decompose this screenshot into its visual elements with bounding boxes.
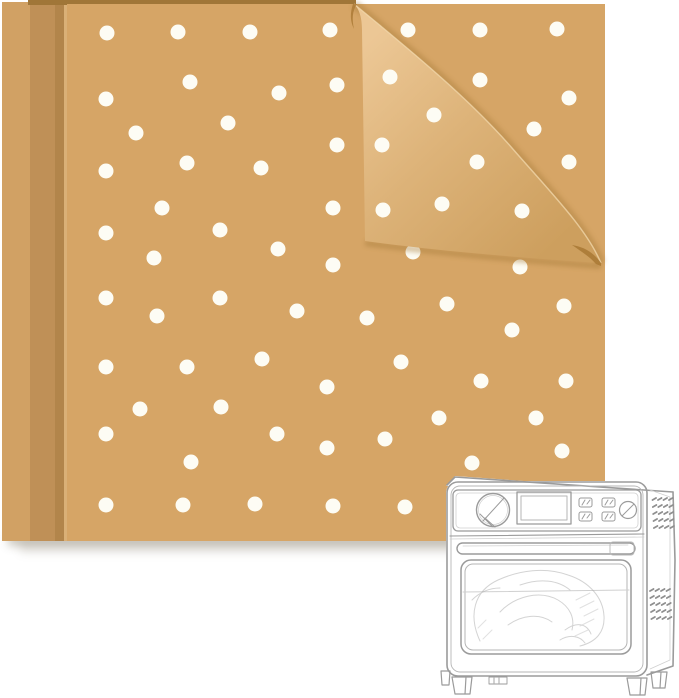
perforation-dot	[529, 411, 544, 426]
perforation-dot	[320, 380, 335, 395]
product-image	[0, 0, 679, 698]
oven-sketch	[441, 476, 675, 695]
perforation-dot	[398, 500, 413, 515]
perforation-dot	[465, 456, 480, 471]
foot-back-left	[441, 671, 450, 685]
perforation-dot	[562, 155, 577, 170]
perforation-dot	[180, 360, 195, 375]
perforation-dot	[243, 25, 258, 40]
perforation-dot	[100, 26, 115, 41]
perforation-dot	[99, 92, 114, 107]
perforation-dot	[320, 441, 335, 456]
perforation-dot	[213, 291, 228, 306]
perforation-dot	[99, 226, 114, 241]
perforation-dot	[474, 374, 489, 389]
perforation-dot	[213, 223, 228, 238]
scene-svg	[0, 0, 679, 698]
perforation-dot	[326, 201, 341, 216]
paper-stack	[2, 0, 605, 553]
perforation-dot	[155, 201, 170, 216]
perforation-dot	[440, 297, 455, 312]
perforation-dot	[248, 497, 263, 512]
perforation-dot	[323, 23, 338, 38]
perforation-dot	[99, 360, 114, 375]
door-latch	[489, 677, 507, 684]
perforation-dot	[470, 155, 485, 170]
perforation-dot	[290, 304, 305, 319]
perforation-dot	[183, 75, 198, 90]
perforation-dot	[473, 23, 488, 38]
perforation-dot	[133, 402, 148, 417]
perforation-dot	[147, 251, 162, 266]
perforation-dot	[184, 455, 199, 470]
perforation-dot	[557, 299, 572, 314]
perforation-dot	[254, 161, 269, 176]
perforation-dot	[270, 427, 285, 442]
perforation-dot	[129, 126, 144, 141]
perforation-dot	[99, 164, 114, 179]
sheet-edge-band-1	[2, 2, 30, 541]
perforation-dot	[255, 352, 270, 367]
perforation-dot	[432, 411, 447, 426]
perforation-dot	[221, 116, 236, 131]
perforation-dot	[99, 427, 114, 442]
perforation-dot	[550, 22, 565, 37]
perforation-dot	[214, 400, 229, 415]
perforation-dot	[180, 156, 195, 171]
perforation-dot	[378, 432, 393, 447]
perforation-dot	[555, 444, 570, 459]
perforation-dot	[271, 242, 286, 257]
perforation-dot	[562, 91, 577, 106]
perforation-dot	[383, 70, 398, 85]
perforation-dot	[435, 197, 450, 212]
perforation-dot	[326, 258, 341, 273]
perforation-dot	[427, 108, 442, 123]
perforation-dot	[473, 73, 488, 88]
perforation-dot	[375, 138, 390, 153]
perforation-dot	[99, 291, 114, 306]
perforation-dot	[176, 498, 191, 513]
perforation-dot	[527, 122, 542, 137]
perforation-dot	[360, 311, 375, 326]
perforation-dot	[401, 23, 416, 38]
perforation-dot	[559, 374, 574, 389]
perforation-dot	[515, 204, 530, 219]
foot-front-left	[452, 677, 472, 694]
foot-back-right	[651, 672, 667, 688]
perforation-dot	[330, 78, 345, 93]
perforation-dot	[272, 86, 287, 101]
perforation-dot	[505, 323, 520, 338]
foot-front-right	[627, 678, 647, 695]
perforation-dot	[330, 138, 345, 153]
perforation-dot	[394, 355, 409, 370]
perforation-dot	[376, 203, 391, 218]
perforation-dot	[99, 498, 114, 513]
perforation-dot	[150, 309, 165, 324]
perforation-dot	[326, 499, 341, 514]
perforation-dot	[171, 25, 186, 40]
